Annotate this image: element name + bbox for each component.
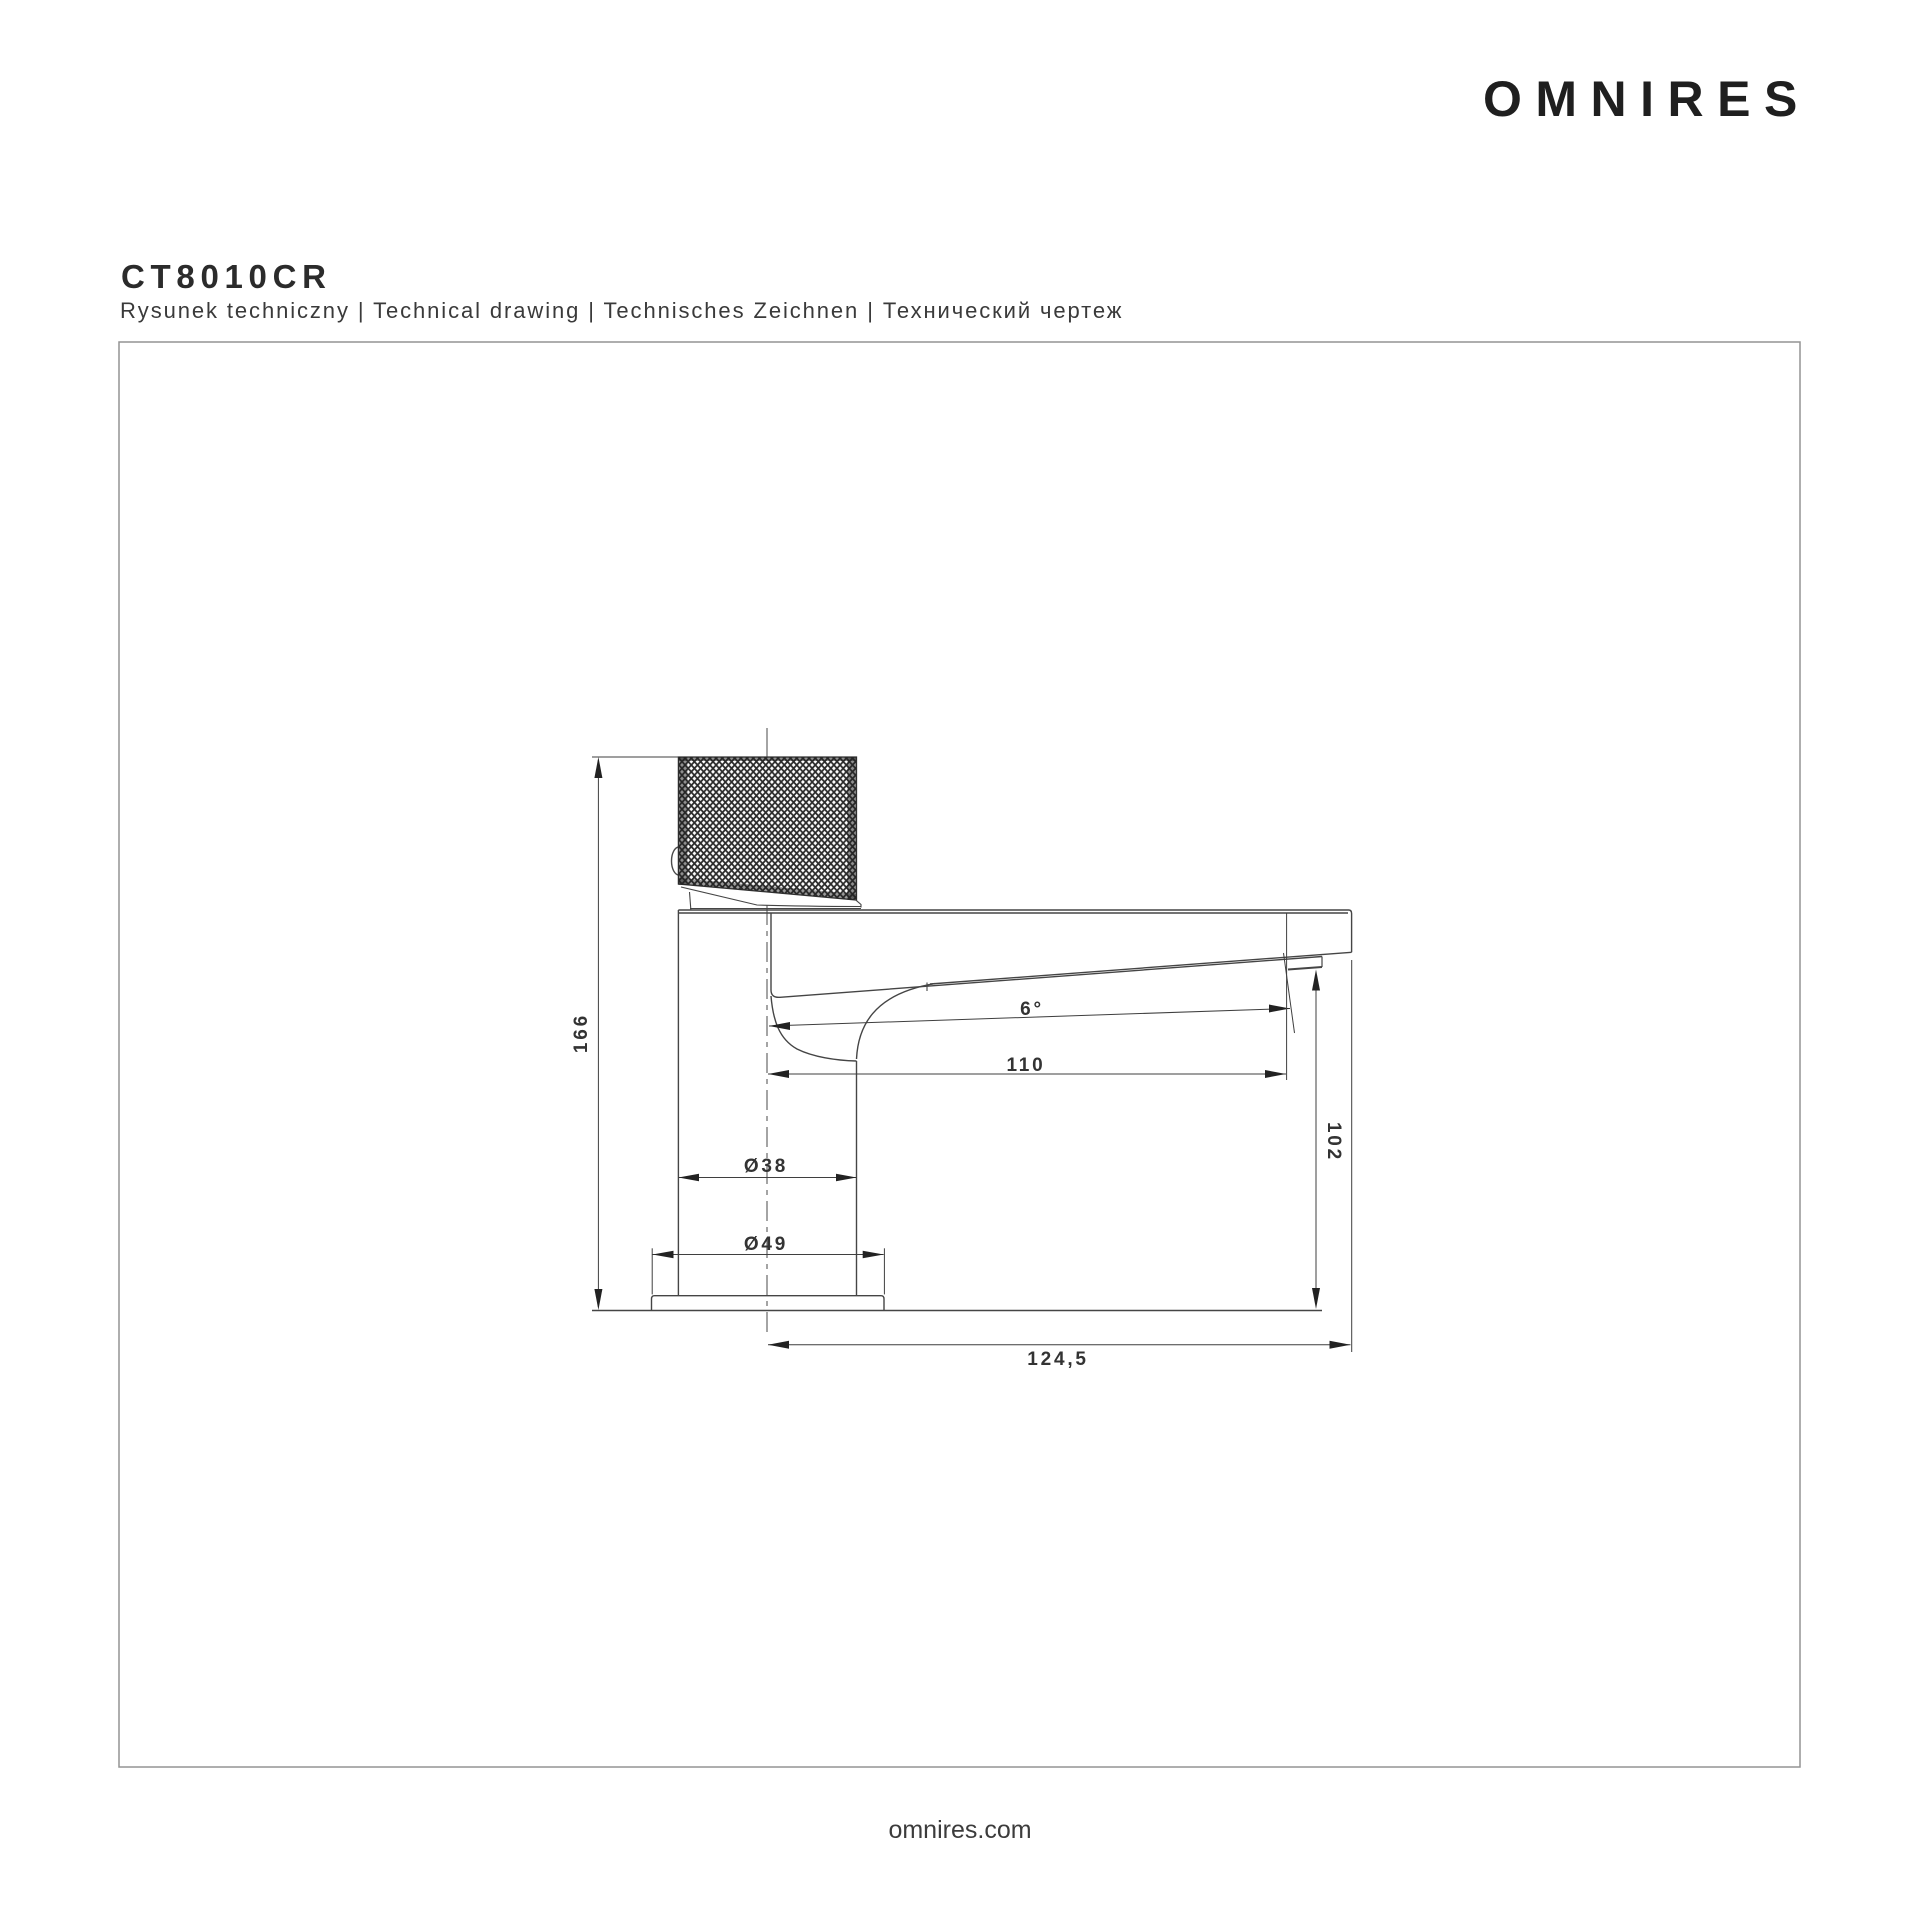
svg-text:124,5: 124,5 bbox=[1027, 1349, 1089, 1370]
svg-text:6°: 6° bbox=[1020, 999, 1044, 1020]
svg-text:166: 166 bbox=[571, 1013, 592, 1053]
svg-text:102: 102 bbox=[1323, 1122, 1344, 1162]
svg-text:Rysunek techniczny | Technical: Rysunek techniczny | Technical drawing |… bbox=[120, 298, 1123, 323]
svg-text:omnires.com: omnires.com bbox=[888, 1816, 1031, 1844]
svg-text:CT8010CR: CT8010CR bbox=[121, 258, 332, 295]
svg-text:Ø49: Ø49 bbox=[744, 1234, 788, 1255]
svg-text:110: 110 bbox=[1006, 1055, 1045, 1076]
svg-text:OMNIRES: OMNIRES bbox=[1483, 71, 1811, 127]
svg-text:Ø38: Ø38 bbox=[744, 1156, 788, 1177]
